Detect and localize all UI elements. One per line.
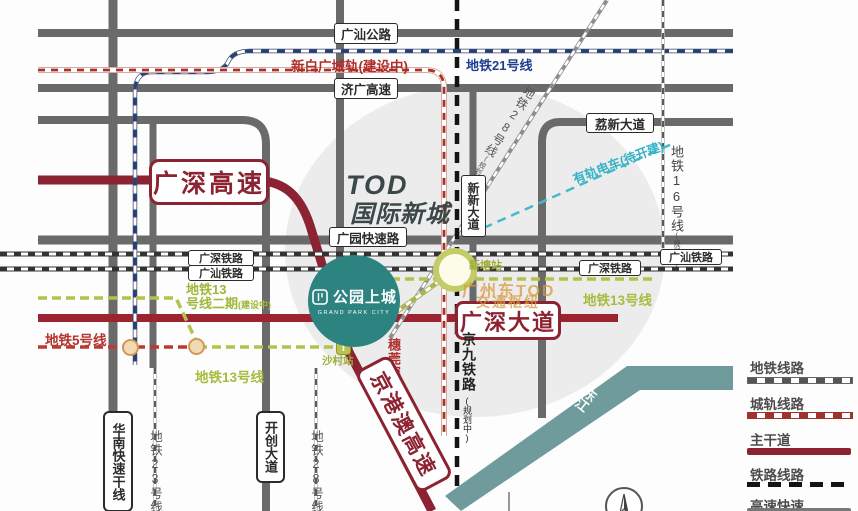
label-metro5: 地铁5号线 (45, 329, 107, 349)
label-metro13-west: 地铁13号线 (195, 366, 264, 386)
label-metro28: 地铁28号线(规划中) (307, 430, 326, 511)
label-text: 广深铁路 (588, 260, 632, 276)
label-text: 交通枢纽 (476, 294, 540, 310)
label-text: 京九铁路 (461, 332, 477, 392)
interchange-station-2 (188, 338, 205, 355)
label-jingjiu-note: (规划中) (461, 396, 474, 443)
legend-line-cityrail (747, 412, 853, 419)
label-shacun-station: 沙村站 (322, 353, 354, 368)
label-text: 地铁13号线 (583, 293, 652, 308)
label-metro13-phase2: 地铁13 号线二期(建设中) (186, 283, 271, 312)
label-text: 开创大道 (261, 421, 280, 473)
label-text: 济广高速 (341, 79, 391, 98)
label-guangyuan-kuaisulu: 广园快速路 (329, 227, 407, 247)
label-jiguang-gaosu: 济广高速 (334, 78, 398, 99)
label-text: 沙村站 (322, 355, 354, 367)
legend-item-railway: 铁路线路 (750, 464, 804, 484)
label-text: 地铁13 (186, 282, 226, 297)
label-xinxin-dadao: 新新大道 (461, 175, 486, 237)
label-text: 号线二期 (186, 296, 238, 311)
construction-note: (建设中) (238, 300, 271, 310)
compass-needle (617, 493, 631, 511)
label-kaichuang-dadao: 开创大道 (256, 411, 285, 483)
label-text: (规划中) (462, 396, 472, 443)
label-guangshen-tielu-right: 广深铁路 (579, 260, 641, 276)
legend-text: 铁路线路 (750, 468, 804, 483)
label-guangshen-gaosu: 广深高速 (149, 159, 269, 205)
label-text: 广汕铁路 (669, 249, 713, 265)
label-jingjiu-tielu: 京九铁路 (459, 332, 479, 392)
label-text: 广深高速 (153, 164, 265, 200)
label-xinbaiguang: 新白广城轨(建设中) (291, 55, 408, 75)
label-text: 广深铁路 (199, 250, 243, 266)
legend-item-artery: 主干道 (750, 429, 791, 449)
logo-seal-icon (311, 288, 329, 306)
label-text: 荔新大道 (595, 114, 645, 133)
label-text: 新塘站 (469, 260, 502, 272)
watermark-line2: 交通枢纽 (476, 292, 540, 312)
legend-line-metro (747, 377, 853, 384)
legend-text: 城轨线路 (750, 397, 804, 412)
legend-item-metro: 地铁线路 (750, 357, 804, 377)
label-text: 广汕铁路 (199, 265, 243, 281)
label-guangshan-tielu-right: 广汕铁路 (660, 249, 722, 265)
label-text: 地铁28号线 (309, 430, 323, 511)
label-text: 地铁23号线 (148, 430, 162, 511)
label-guangshan-tielu-center: 广汕铁路 (188, 265, 254, 281)
grand-park-city-logo: 公园上城 GRAND PARK CITY (308, 255, 400, 347)
legend-text: 地铁线路 (750, 361, 804, 376)
label-text: 地铁5号线 (45, 333, 107, 348)
label-text: 地铁16号线 (669, 145, 684, 233)
label-metro21: 地铁21号线 (466, 55, 532, 74)
logo-cn-text: 公园上城 (333, 286, 397, 307)
legend-item-cityrail: 城轨线路 (750, 393, 804, 413)
legend-text: 主干道 (750, 433, 791, 448)
interchange-station-1 (122, 339, 139, 356)
label-huanan-kuaisu: 华南快速干线 (103, 411, 133, 511)
legend-line-railway (747, 482, 851, 487)
legend-line-artery (747, 448, 851, 455)
tod-title-line2: 国际新城 (350, 194, 450, 229)
label-metro23: 地铁23号线(规划中) (146, 430, 165, 511)
logo-en-text: GRAND PARK CITY (318, 310, 391, 316)
label-guangshan-gonglu: 广汕公路 (334, 23, 398, 44)
label-text: 国际新城 (350, 201, 450, 228)
label-text: 华南快速干线 (109, 423, 128, 501)
transit-map: 广汕公路 新白广城轨(建设中) 地铁21号线 济广高速 荔新大道 地铁28号线(… (0, 0, 858, 511)
label-xintang-station: 新塘站 (469, 257, 502, 273)
label-text: 地铁13号线 (195, 370, 264, 385)
label-text: 广汕公路 (341, 24, 391, 43)
label-text: 地铁21号线 (466, 58, 532, 73)
label-text: 新白广城轨(建设中) (291, 59, 408, 74)
label-metro13-east: 地铁13号线 (583, 289, 652, 309)
label-text: 新新大道 (465, 182, 482, 230)
label-guangshen-tielu-center: 广深铁路 (188, 250, 254, 266)
label-lixin-dadao: 荔新大道 (586, 113, 654, 133)
label-text: 广园快速路 (337, 228, 400, 247)
